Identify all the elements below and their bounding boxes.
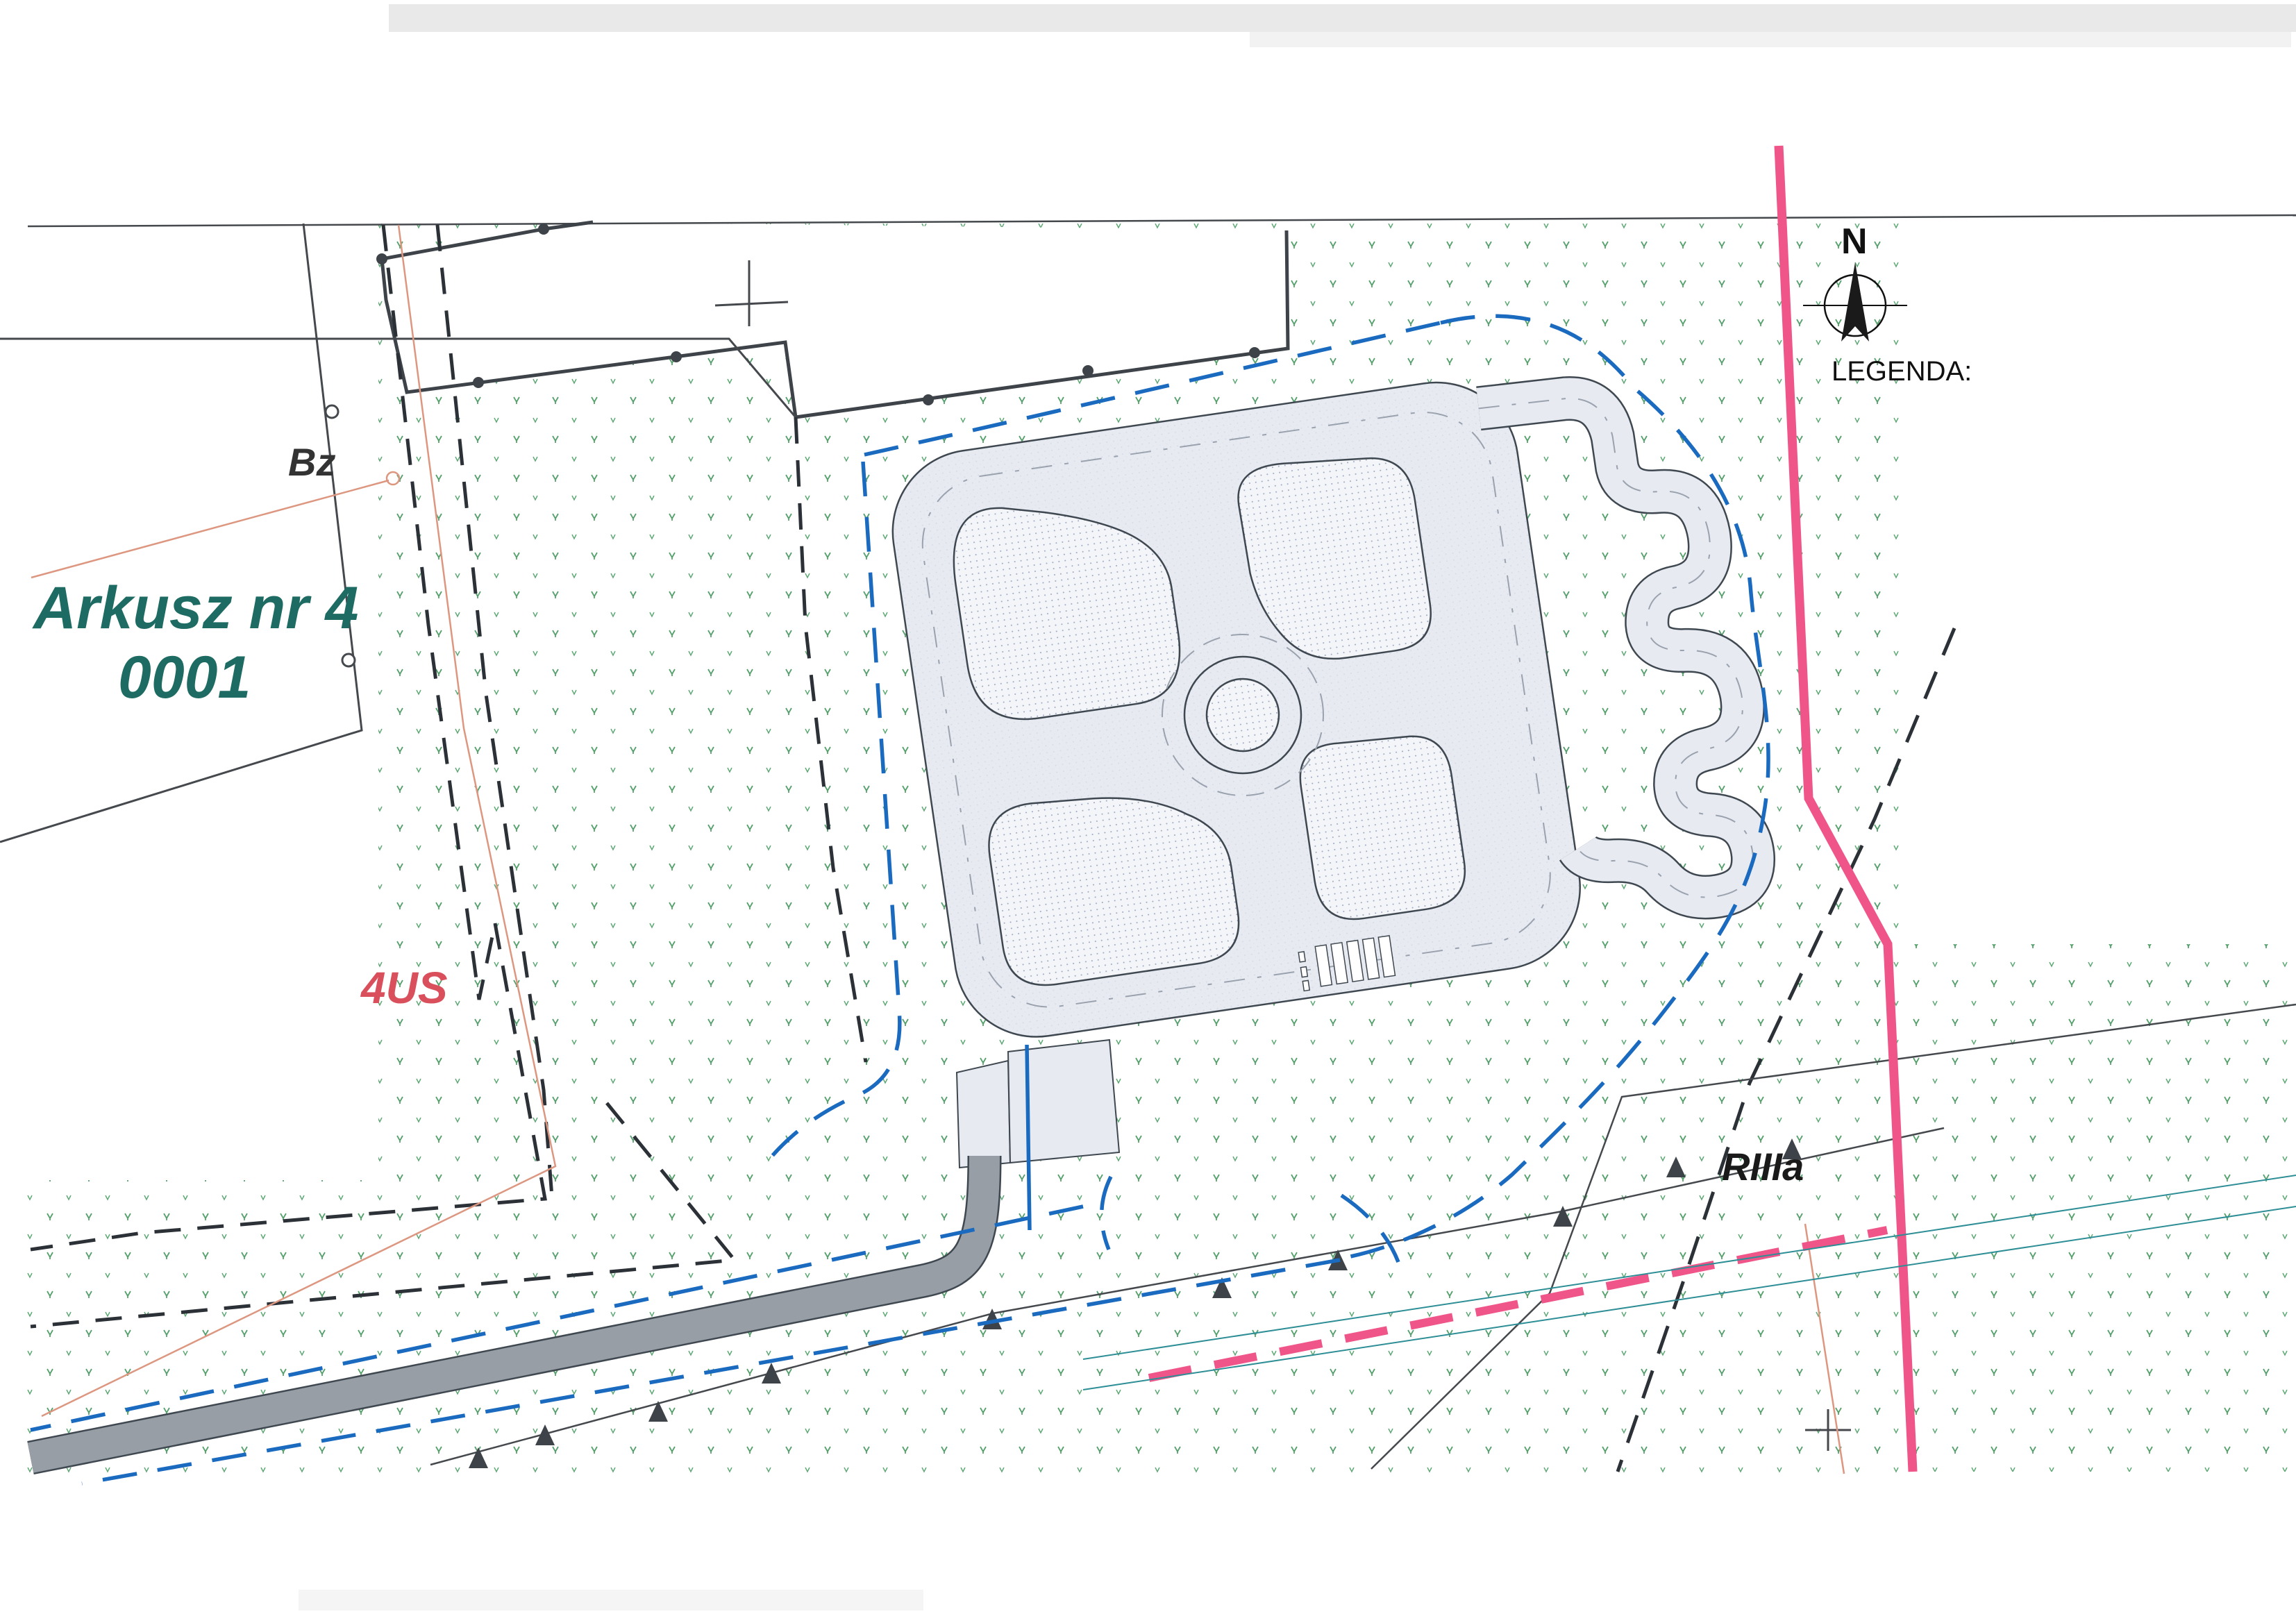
svg-text:Arkusz nr 4: Arkusz nr 4 xyxy=(32,575,358,641)
svg-text:4US: 4US xyxy=(360,963,448,1013)
svg-text:RIIIa: RIIIa xyxy=(1722,1145,1804,1188)
svg-text:N: N xyxy=(1841,221,1868,262)
svg-text:0001: 0001 xyxy=(118,644,251,711)
svg-text:Bz: Bz xyxy=(288,440,335,484)
svg-text:LEGENDA:: LEGENDA: xyxy=(1832,356,1972,387)
